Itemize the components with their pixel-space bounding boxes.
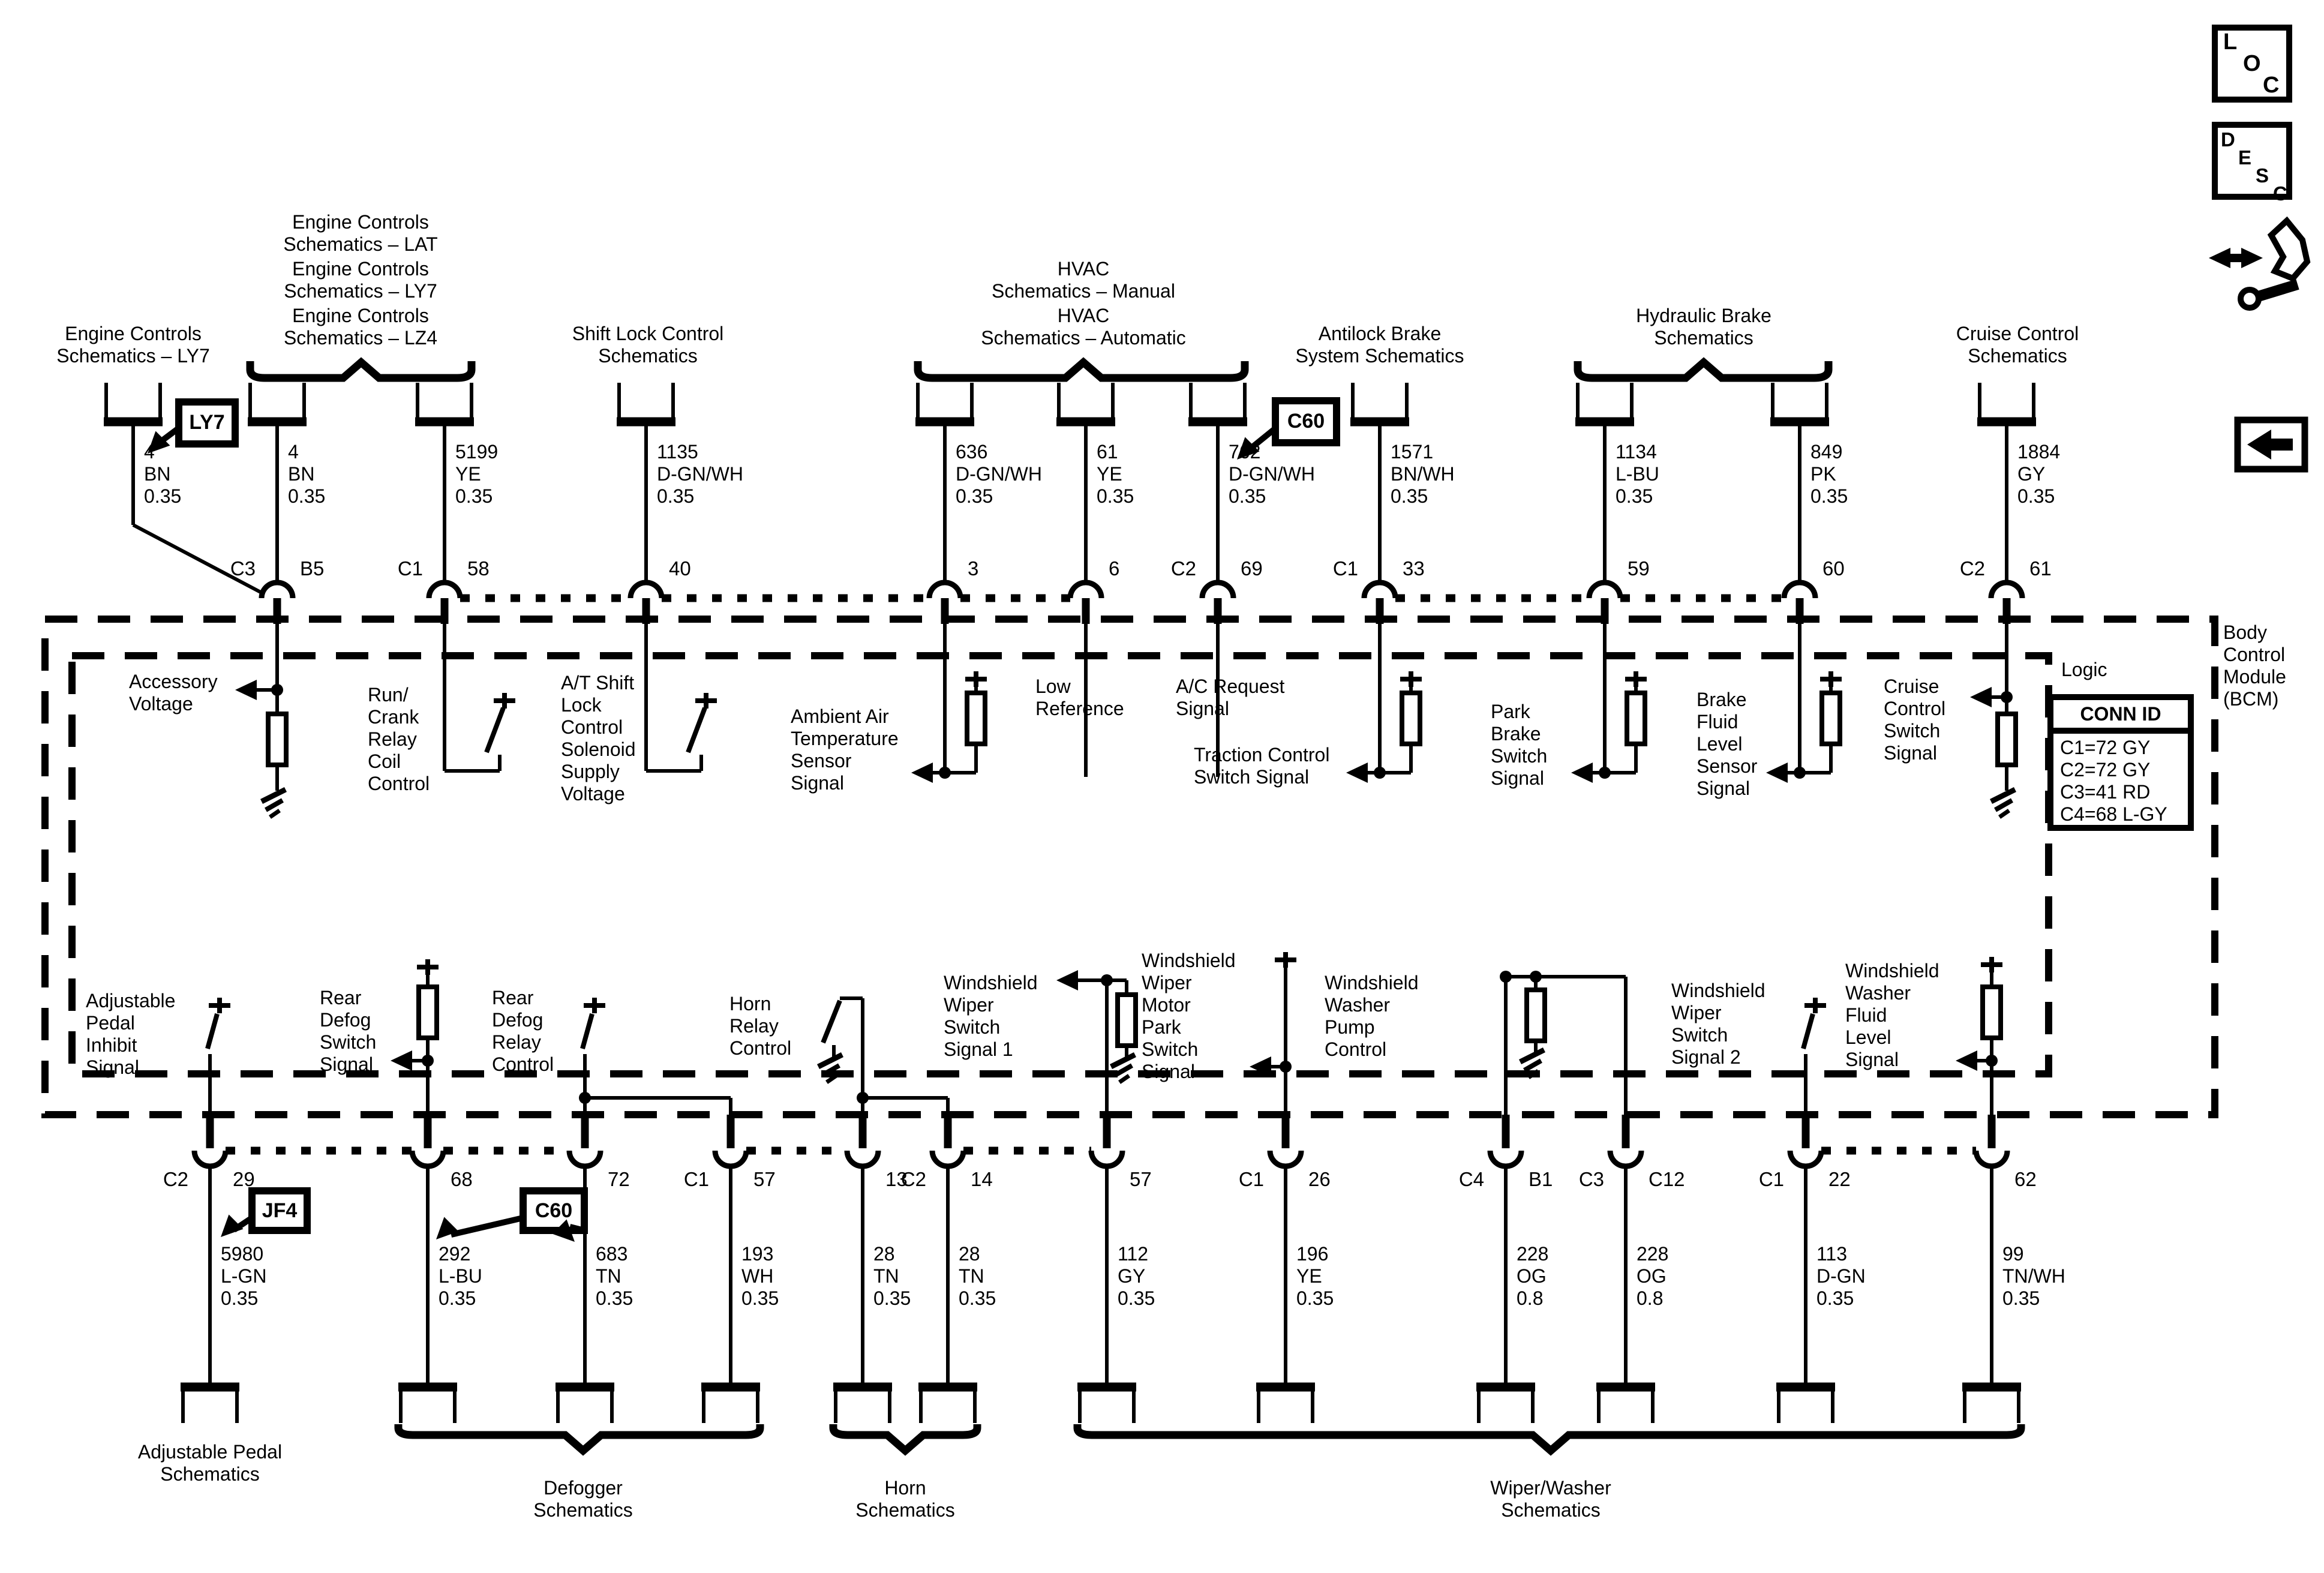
top-pin-connector: C1 (1333, 558, 1358, 580)
bottom-pin-connector: C3 (1579, 1169, 1604, 1190)
signal-at-shift-lock: A/T Shift Lock Control Solenoid Supply V… (561, 672, 636, 805)
top-pin-number: 3 (968, 558, 978, 580)
title-hvac-automatic: HVAC Schematics – Automatic (981, 305, 1185, 349)
signal-traction-control: Traction Control Switch Signal (1194, 744, 1329, 788)
bottom-wire-label: 28 TN 0.35 (873, 1243, 911, 1310)
signal-wiper-switch-2: Windshield Wiper Switch Signal 2 (1671, 980, 1765, 1068)
callout-ly7[interactable]: LY7 (189, 412, 224, 434)
desc-icon-letter-e[interactable]: E (2238, 146, 2251, 169)
callout-jf4[interactable]: JF4 (262, 1200, 298, 1222)
bottom-pin-number: 57 (1130, 1169, 1152, 1190)
signal-adjustable-pedal: Adjustable Pedal Inhibit Signal (86, 990, 175, 1079)
desc-icon-letter-c[interactable]: C (2273, 182, 2287, 205)
back-arrow-icon[interactable] (2238, 420, 2305, 469)
desc-icon-letter-s[interactable]: S (2256, 164, 2269, 187)
bottom-pin-number: 29 (233, 1169, 255, 1190)
section-horn: Horn Schematics (855, 1477, 954, 1521)
signal-low-reference: Low Reference (1035, 676, 1124, 720)
title-engine-controls-ly7b: Engine Controls Schematics – LY7 (284, 258, 437, 302)
bottom-pin-number: 62 (2014, 1169, 2037, 1190)
bottom-pin-number: 72 (608, 1169, 630, 1190)
top-pin-number: 40 (669, 558, 691, 580)
top-wire-label: 1134 L-BU 0.35 (1616, 441, 1659, 508)
signal-ac-request: A/C Request Signal (1176, 676, 1284, 720)
bottom-pin-connector: C2 (901, 1169, 926, 1190)
top-wire-label: 4 BN 0.35 (144, 441, 181, 508)
section-defogger: Defogger Schematics (533, 1477, 632, 1521)
loc-icon-letter-l[interactable]: L (2223, 31, 2237, 53)
top-wire-label: 61 YE 0.35 (1097, 441, 1134, 508)
wiring-diagram-page: Engine Controls Schematics – LY7 Engine … (0, 0, 2324, 1573)
bcm-label: Body Control Module (BCM) (2223, 622, 2286, 710)
bottom-pin-connector: C1 (1239, 1169, 1264, 1190)
bottom-wire-label: 292 L-BU 0.35 (439, 1243, 482, 1310)
signal-run-crank-relay: Run/ Crank Relay Coil Control (368, 684, 430, 795)
signal-cruise-switch: Cruise Control Switch Signal (1884, 676, 1945, 764)
top-pin-number: 61 (2029, 558, 2052, 580)
top-pin-number: 6 (1109, 558, 1119, 580)
signal-ambient-air: Ambient Air Temperature Sensor Signal (791, 706, 899, 794)
bottom-wire-label: 28 TN 0.35 (959, 1243, 996, 1310)
top-wire-label: 1884 GY 0.35 (2017, 441, 2060, 508)
signal-wiper-switch-1: Windshield Wiper Switch Signal 1 (944, 972, 1038, 1061)
conn-id-rows: C1=72 GY C2=72 GY C3=41 RD C4=68 L-GY (2060, 737, 2167, 825)
top-wire-label: 1571 BN/WH 0.35 (1391, 441, 1455, 508)
bottom-pin-connector: C4 (1459, 1169, 1484, 1190)
top-pin-number: 59 (1628, 558, 1650, 580)
title-engine-controls-lat: Engine Controls Schematics – LAT (283, 211, 437, 256)
bottom-pin-number: 22 (1828, 1169, 1851, 1190)
bottom-pin-number: 57 (753, 1169, 776, 1190)
top-wire-label: 849 PK 0.35 (1810, 441, 1848, 508)
top-wire-label: 5199 YE 0.35 (455, 441, 498, 508)
conn-id-title: CONN ID (2080, 703, 2161, 725)
top-wire-label: 762 D-GN/WH 0.35 (1229, 441, 1315, 508)
top-wire-label: 1135 D-GN/WH 0.35 (657, 441, 743, 508)
bottom-wire-label: 228 OG 0.8 (1637, 1243, 1668, 1310)
bottom-pin-connector: C1 (1759, 1169, 1784, 1190)
signal-washer-fluid: Windshield Washer Fluid Level Signal (1845, 960, 1939, 1071)
navigation-wrench-icon[interactable] (2209, 221, 2307, 308)
bottom-wire-label: 113 D-GN 0.35 (1816, 1243, 1866, 1310)
top-pin-number: B5 (300, 558, 324, 580)
bottom-wire-label: 228 OG 0.8 (1517, 1243, 1548, 1310)
callout-c60-bottom[interactable]: C60 (535, 1200, 572, 1222)
signal-wiper-motor-park: Windshield Wiper Motor Park Switch Signa… (1142, 950, 1236, 1083)
signal-rear-defog-switch: Rear Defog Switch Signal (320, 987, 376, 1076)
loc-icon-letter-o[interactable]: O (2243, 53, 2261, 75)
top-pin-number: 69 (1241, 558, 1263, 580)
top-pin-connector: C2 (1171, 558, 1196, 580)
title-engine-controls-ly7: Engine Controls Schematics – LY7 (56, 323, 210, 367)
bottom-wire-label: 99 TN/WH 0.35 (2002, 1243, 2065, 1310)
bottom-wire-label: 196 YE 0.35 (1296, 1243, 1334, 1310)
bottom-pin-number: 68 (451, 1169, 473, 1190)
bottom-wire-label: 683 TN 0.35 (596, 1243, 633, 1310)
signal-washer-pump: Windshield Washer Pump Control (1325, 972, 1419, 1061)
section-wiper-washer: Wiper/Washer Schematics (1490, 1477, 1611, 1521)
signal-accessory-voltage: Accessory Voltage (129, 671, 218, 715)
bottom-pin-number: C12 (1649, 1169, 1685, 1190)
title-shift-lock: Shift Lock Control Schematics (572, 323, 724, 367)
title-cruise-control: Cruise Control Schematics (1956, 323, 2079, 367)
signal-park-brake: Park Brake Switch Signal (1491, 701, 1547, 789)
desc-icon-letter-d[interactable]: D (2221, 128, 2235, 151)
top-pin-number: 33 (1403, 558, 1425, 580)
title-engine-controls-lz4: Engine Controls Schematics – LZ4 (284, 305, 437, 349)
title-hydraulic-brake: Hydraulic Brake Schematics (1636, 305, 1771, 349)
logic-label: Logic (2061, 659, 2107, 681)
title-antilock-brake: Antilock Brake System Schematics (1296, 323, 1464, 367)
top-pin-connector: C3 (230, 558, 256, 580)
loc-icon-letter-c[interactable]: C (2263, 74, 2279, 97)
bottom-pin-connector: C1 (684, 1169, 709, 1190)
bottom-wire-label: 193 WH 0.35 (741, 1243, 779, 1310)
top-pin-connector: C1 (398, 558, 423, 580)
signal-rear-defog-relay: Rear Defog Relay Control (492, 987, 554, 1076)
bottom-wire-label: 112 GY 0.35 (1118, 1243, 1155, 1310)
bottom-pin-connector: C2 (163, 1169, 188, 1190)
top-pin-number: 58 (467, 558, 490, 580)
signal-brake-fluid: Brake Fluid Level Sensor Signal (1697, 689, 1757, 800)
bottom-pin-number: 26 (1308, 1169, 1331, 1190)
top-pin-number: 60 (1822, 558, 1845, 580)
top-pin-connector: C2 (1960, 558, 1985, 580)
top-wire-label: 4 BN 0.35 (288, 441, 325, 508)
section-adjustable-pedal: Adjustable Pedal Schematics (138, 1441, 282, 1485)
signal-horn-relay: Horn Relay Control (729, 993, 791, 1059)
bottom-pin-number: B1 (1529, 1169, 1553, 1190)
bottom-pin-number: 14 (971, 1169, 993, 1190)
top-wire-label: 636 D-GN/WH 0.35 (956, 441, 1042, 508)
bottom-wire-label: 5980 L-GN 0.35 (221, 1243, 266, 1310)
title-hvac-manual: HVAC Schematics – Manual (992, 258, 1175, 302)
callout-c60-top[interactable]: C60 (1287, 410, 1325, 433)
